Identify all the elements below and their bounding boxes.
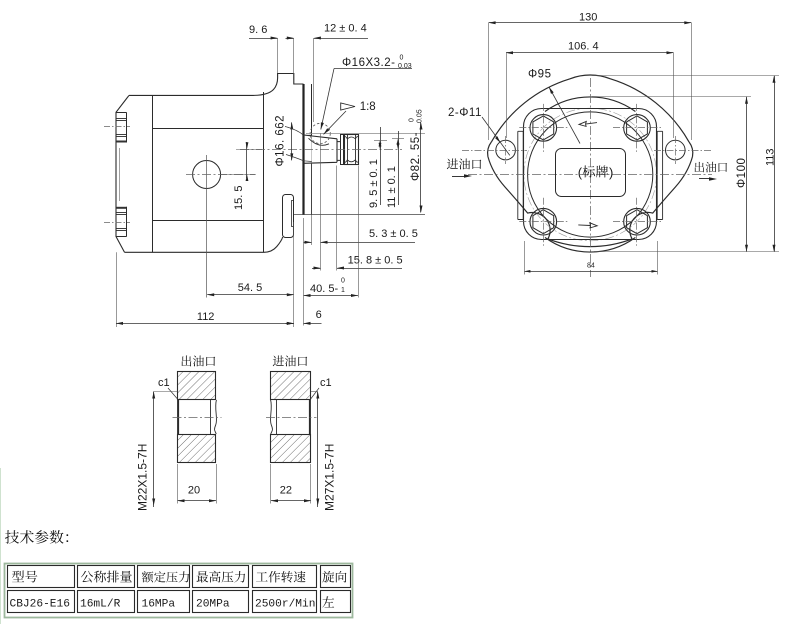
svg-text:1: 1	[341, 287, 345, 294]
svg-text:16MPa: 16MPa	[142, 599, 176, 611]
svg-text:c1: c1	[320, 377, 332, 389]
svg-text:(: (	[578, 165, 583, 180]
svg-text:2500r/Min: 2500r/Min	[255, 599, 315, 611]
svg-text:106. 4: 106. 4	[568, 41, 599, 53]
svg-text:84: 84	[587, 263, 595, 270]
svg-text:130: 130	[579, 12, 597, 24]
svg-text:5. 3 ± 0. 5: 5. 3 ± 0. 5	[369, 228, 418, 240]
svg-text:M27X1.5-7H: M27X1.5-7H	[323, 444, 337, 511]
svg-text:): )	[609, 165, 613, 180]
svg-text:Φ16X3.2-: Φ16X3.2-	[342, 57, 395, 69]
svg-text:CBJ26-E16: CBJ26-E16	[10, 599, 70, 611]
svg-text:Φ95: Φ95	[528, 69, 551, 81]
svg-text:11 ± 0. 1: 11 ± 0. 1	[386, 166, 398, 208]
svg-text:0: 0	[400, 55, 404, 62]
svg-text:20MPa: 20MPa	[196, 599, 230, 611]
svg-text:6: 6	[316, 309, 322, 321]
svg-text:Φ16. 662: Φ16. 662	[275, 115, 287, 167]
svg-text:0: 0	[341, 278, 345, 285]
svg-text:112: 112	[197, 311, 215, 323]
svg-text:0: 0	[409, 118, 416, 122]
svg-text:54. 5: 54. 5	[238, 282, 262, 294]
svg-text:16mL/R: 16mL/R	[80, 599, 121, 611]
svg-text:c1: c1	[158, 377, 170, 389]
svg-text:12 ± 0. 4: 12 ± 0. 4	[324, 23, 367, 35]
svg-text:9. 5 ± 0. 1: 9. 5 ± 0. 1	[368, 159, 380, 208]
svg-text:20: 20	[188, 485, 200, 497]
svg-text:2-Φ11: 2-Φ11	[448, 107, 482, 119]
svg-text:9. 6: 9. 6	[249, 24, 267, 36]
svg-text:0.05: 0.05	[417, 109, 424, 123]
svg-text:0.03: 0.03	[398, 63, 412, 70]
svg-text:M22X1.5-7H: M22X1.5-7H	[136, 444, 150, 511]
svg-text:15. 5: 15. 5	[233, 186, 245, 210]
svg-text:40. 5-: 40. 5-	[310, 283, 338, 295]
svg-text:1:8: 1:8	[360, 101, 376, 113]
svg-text:15. 8 ± 0. 5: 15. 8 ± 0. 5	[348, 255, 403, 267]
svg-text:22: 22	[280, 485, 292, 497]
